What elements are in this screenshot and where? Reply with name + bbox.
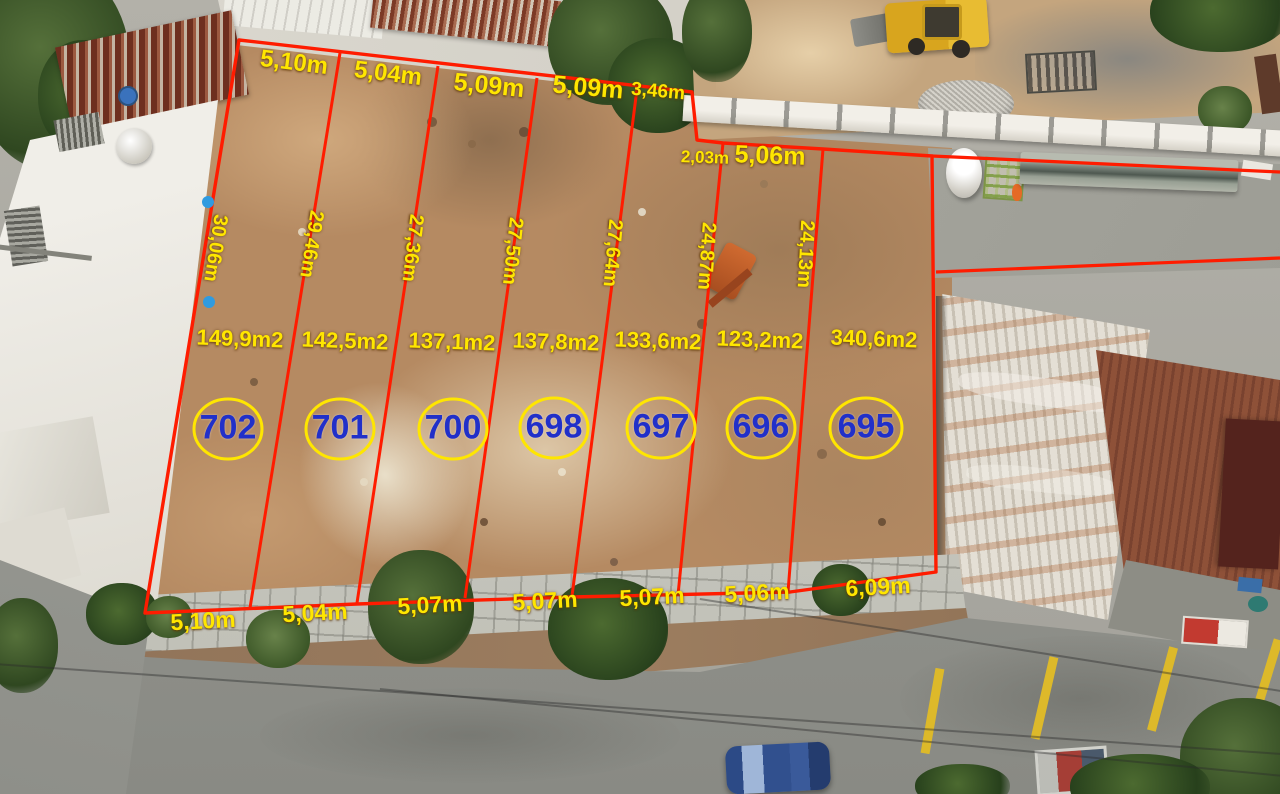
bottom-dim-label: 5,07m [397, 590, 464, 620]
aerial-lot-photo: 5,10m 5,04m 5,09m 5,09m 3,46m 2,03m 5,06… [0, 0, 1280, 794]
lot-number: 696 [733, 408, 790, 447]
area-label: 137,8m2 [512, 327, 600, 356]
boundary-extension-lower [936, 258, 1280, 272]
survey-marker-dot-2 [203, 296, 215, 308]
top-dim-label: 5,09m [551, 70, 624, 105]
area-label: 142,5m2 [301, 326, 389, 355]
step-dim-label: 5,06m [734, 140, 806, 171]
top-dim-label: 3,46m [630, 79, 686, 106]
bottom-dim-label: 5,04m [282, 598, 349, 628]
lot-number: 697 [633, 408, 690, 447]
lot-number: 695 [838, 408, 895, 447]
lot-divider-5 [678, 143, 723, 595]
area-label: 137,1m2 [408, 327, 496, 356]
area-label: 340,6m2 [830, 324, 918, 353]
side-dim-label: 24,87m [692, 221, 720, 290]
bottom-dim-label: 5,10m [170, 606, 237, 636]
area-label: 149,9m2 [196, 324, 284, 353]
side-dim-label: 24,13m [792, 220, 819, 289]
lot-number: 698 [526, 408, 583, 447]
bottom-dim-label: 5,07m [512, 586, 579, 616]
bottom-dim-label: 5,07m [619, 582, 686, 612]
bottom-dim-label: 5,06m [724, 578, 791, 608]
step-dim-label: 2,03m [681, 147, 730, 169]
lot-number: 700 [425, 409, 482, 448]
lot-number: 702 [200, 409, 257, 448]
lot-number: 701 [312, 409, 369, 448]
area-label: 123,2m2 [716, 325, 804, 354]
lot-divider-6 [788, 149, 823, 592]
bottom-dim-label: 6,09m [845, 572, 912, 602]
survey-marker-dot [202, 196, 214, 208]
boundary-overlay [0, 0, 1280, 794]
area-label: 133,6m2 [614, 326, 702, 355]
boundary-extension-top [932, 156, 1280, 172]
